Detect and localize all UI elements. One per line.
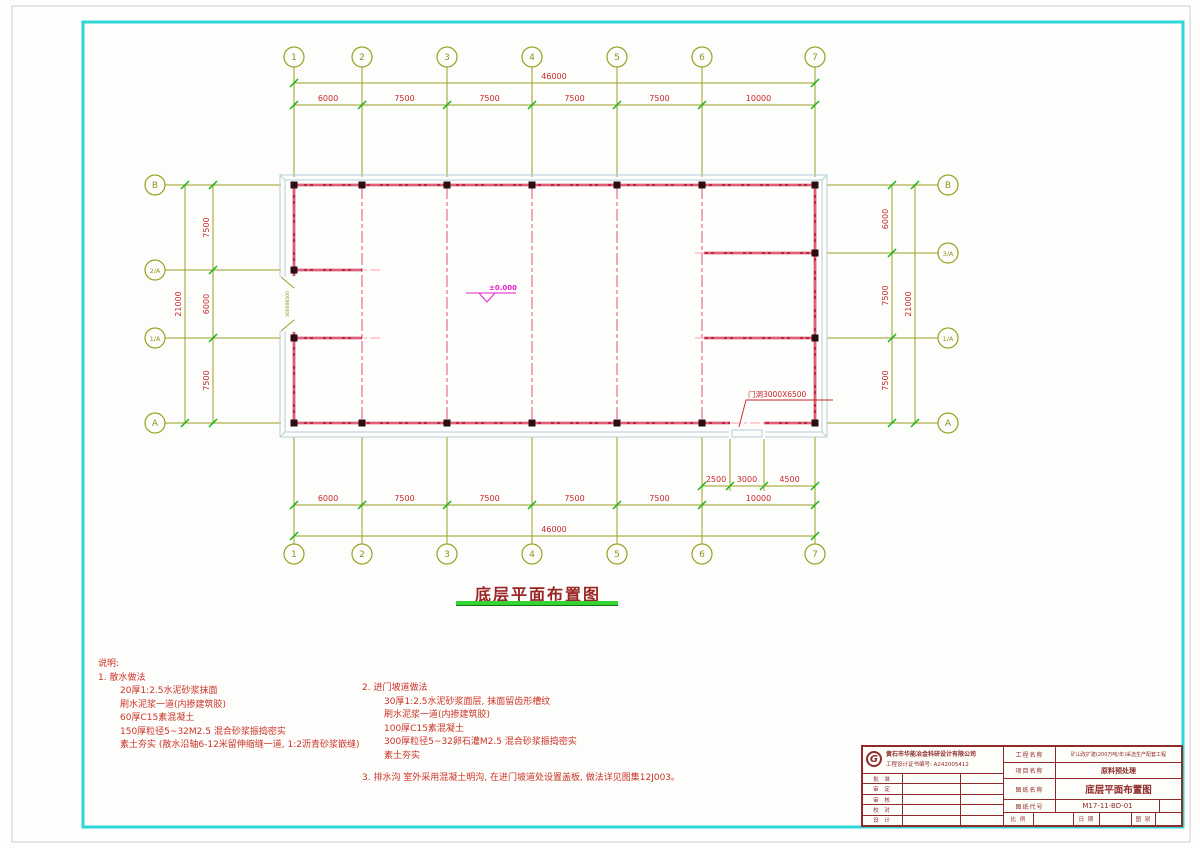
dim-label: 7500: [394, 94, 414, 103]
bottom-door-opening: [729, 427, 765, 439]
axis-bubble-label: B: [945, 181, 951, 191]
dim-label: 7500: [479, 494, 499, 503]
dim-label: 6000: [318, 94, 338, 103]
notes-column-2: 2. 进门坡道做法 30厚1:2.5水泥砂浆面层, 抹面留齿形槽纹 刷水泥浆一道…: [362, 682, 680, 786]
elevation-value: ±0.000: [489, 284, 517, 292]
project-name-row: 工程名称 矿山改扩建(200万吨/年)采选生产配套工程: [1004, 747, 1181, 763]
dim-label: 7500: [649, 494, 669, 503]
note-item3: 3. 排水沟 室外采用混凝土明沟, 在进门坡道处设置盖板, 做法详见图集12J0…: [362, 772, 680, 786]
sheet-code-row: 图纸代号 M17-11-BD-01: [1004, 800, 1181, 813]
company-name: 黄石市华能冶金科研设计有限公司: [886, 749, 1002, 758]
elevation-marker: ±0.000: [466, 284, 517, 302]
elevation-triangle-icon: [479, 293, 495, 302]
dim-label: 46000: [541, 525, 566, 534]
column: [529, 420, 536, 427]
dim-label: 21000: [904, 291, 913, 316]
dim-label: 10000: [746, 494, 771, 503]
axis-bubble-label: 2/A: [150, 267, 161, 275]
certificate-number: 工程设计证书编号: A242005412: [886, 760, 1002, 768]
columns: [291, 182, 819, 427]
left-door-size-label: 3000X6500: [285, 291, 291, 317]
note-line: 30厚1:2.5水泥砂浆面层, 抹面留齿形槽纹: [362, 696, 680, 710]
column: [291, 182, 298, 189]
axis-bubble-label: 4: [529, 550, 535, 560]
column: [812, 182, 819, 189]
axis-bubble-label: 1/A: [943, 335, 954, 343]
dim-label: 7500: [881, 370, 890, 390]
column: [812, 250, 819, 257]
column: [291, 335, 298, 342]
column: [444, 182, 451, 189]
column: [359, 420, 366, 427]
sheet-name-row: 图纸名称 底层平面布置图: [1004, 779, 1181, 800]
note-line: 60厚C15素混凝土: [98, 712, 360, 726]
signature-row: 校 对: [863, 805, 1003, 815]
title-block: G 黄石市华能冶金科研设计有限公司 工程设计证书编号: A242005412 批…: [861, 745, 1183, 827]
note-line: 刷水泥浆一道(内掺建筑胶): [98, 699, 360, 713]
axis-bubble-label: 1/A: [150, 335, 161, 343]
dim-label: 46000: [541, 72, 566, 81]
annotations: ±0.000 门洞3000X6500: [466, 284, 833, 427]
note-line: 素土夯实 (散水沿轴6-12米留伸缩缝一道, 1:2沥青砂浆嵌缝): [98, 739, 360, 753]
sheet-name-value: 底层平面布置图: [1056, 779, 1181, 799]
axis-bubble-label: 5: [614, 550, 620, 560]
column: [812, 420, 819, 427]
column: [699, 182, 706, 189]
column: [291, 267, 298, 274]
dim-label: 7500: [202, 217, 211, 237]
drawing-page: 11223344556677B2/A1/AAB3/A1/AA 460006000…: [0, 0, 1200, 848]
axis-bubble-label: 3/A: [943, 250, 954, 258]
company-logo-icon: G: [866, 751, 882, 767]
drawing-title-underline: [456, 601, 618, 606]
axis-bubble-label: B: [152, 181, 158, 191]
item-name-value: 原料预处理: [1056, 763, 1181, 778]
dim-label: 21000: [174, 291, 183, 316]
note-line: 150厚粒径5~32M2.5 混合砂浆振捣密实: [98, 726, 360, 740]
axis-bubble-label: A: [945, 419, 952, 429]
axis-bubble-label: 2: [359, 550, 365, 560]
dim-label: 7500: [649, 94, 669, 103]
note-line: 100厚C15素混凝土: [362, 723, 680, 737]
dim-label: 7500: [394, 494, 414, 503]
axis-bubble-label: 5: [614, 53, 620, 63]
column: [291, 420, 298, 427]
dim-label: 6000: [318, 494, 338, 503]
axis-bubble-label: A: [152, 419, 159, 429]
axis-bubble-label: 3: [444, 53, 450, 63]
eave-outline-inner: [285, 180, 822, 432]
column: [812, 335, 819, 342]
axis-bubble-label: 6: [699, 550, 705, 560]
project-name-value: 矿山改扩建(200万吨/年)采选生产配套工程: [1056, 747, 1181, 762]
axis-bubble-label: 6: [699, 53, 705, 63]
signature-row: 批 准: [863, 774, 1003, 784]
door-size-label: 门洞3000X6500: [748, 390, 807, 399]
signature-row: 审 定: [863, 784, 1003, 794]
dim-label: 7500: [479, 94, 499, 103]
dim-label: 3000: [737, 475, 757, 484]
dim-label: 7500: [881, 285, 890, 305]
dim-label: 7500: [564, 94, 584, 103]
axis-bubble-label: 2: [359, 53, 365, 63]
signature-row: 审 核: [863, 795, 1003, 805]
dim-label: 7500: [564, 494, 584, 503]
sheet-code-value: M17-11-BD-01: [1056, 800, 1159, 812]
column: [359, 182, 366, 189]
axis-bubble-label: 7: [812, 53, 818, 63]
axis-bubble-label: 7: [812, 550, 818, 560]
axis-grid: 11223344556677B2/A1/AAB3/A1/AA: [145, 47, 958, 564]
note-line: 300厚粒径5~32卵石灌M2.5 混合砂浆振捣密实: [362, 736, 680, 750]
column: [614, 182, 621, 189]
axis-bubble-label: 3: [444, 550, 450, 560]
dim-label: 2500: [706, 475, 726, 484]
note-item2-title: 2. 进门坡道做法: [362, 682, 680, 696]
dim-label: 7500: [202, 370, 211, 390]
item-name-row: 项目名称 原料预处理: [1004, 763, 1181, 779]
signature-rows: 批 准 审 定 审 核 校 对 设 计: [863, 774, 1003, 825]
notes-heading: 说明:: [98, 658, 360, 672]
title-block-right: 工程名称 矿山改扩建(200万吨/年)采选生产配套工程 项目名称 原料预处理 图…: [1004, 747, 1181, 825]
note-line: 素土夯实: [362, 750, 680, 764]
company-box: G 黄石市华能冶金科研设计有限公司 工程设计证书编号: A242005412: [863, 747, 1003, 774]
scale-date-row: 比 例 日 期 图 别: [1004, 813, 1181, 825]
axis-bubble-label: 1: [291, 550, 297, 560]
note-line: 20厚1:2.5水泥砂浆抹面: [98, 685, 360, 699]
column: [444, 420, 451, 427]
note-line: 刷水泥浆一道(内掺建筑胶): [362, 709, 680, 723]
notes-column-1: 说明: 1. 散水做法 20厚1:2.5水泥砂浆抹面 刷水泥浆一道(内掺建筑胶)…: [98, 658, 360, 753]
axis-bubble-label: 1: [291, 53, 297, 63]
dim-label: 6000: [202, 294, 211, 314]
dim-label: 4500: [779, 475, 799, 484]
left-door-opening: 3000X6500: [276, 277, 295, 331]
note-item1-title: 1. 散水做法: [98, 672, 360, 686]
axis-bubble-label: 4: [529, 53, 535, 63]
column: [529, 182, 536, 189]
title-block-left: G 黄石市华能冶金科研设计有限公司 工程设计证书编号: A242005412 批…: [863, 747, 1004, 825]
column: [614, 420, 621, 427]
building-plan: 3000X6500: [276, 175, 827, 439]
dim-label: 6000: [881, 209, 890, 229]
signature-row: 设 计: [863, 816, 1003, 825]
column: [699, 420, 706, 427]
dim-label: 10000: [746, 94, 771, 103]
